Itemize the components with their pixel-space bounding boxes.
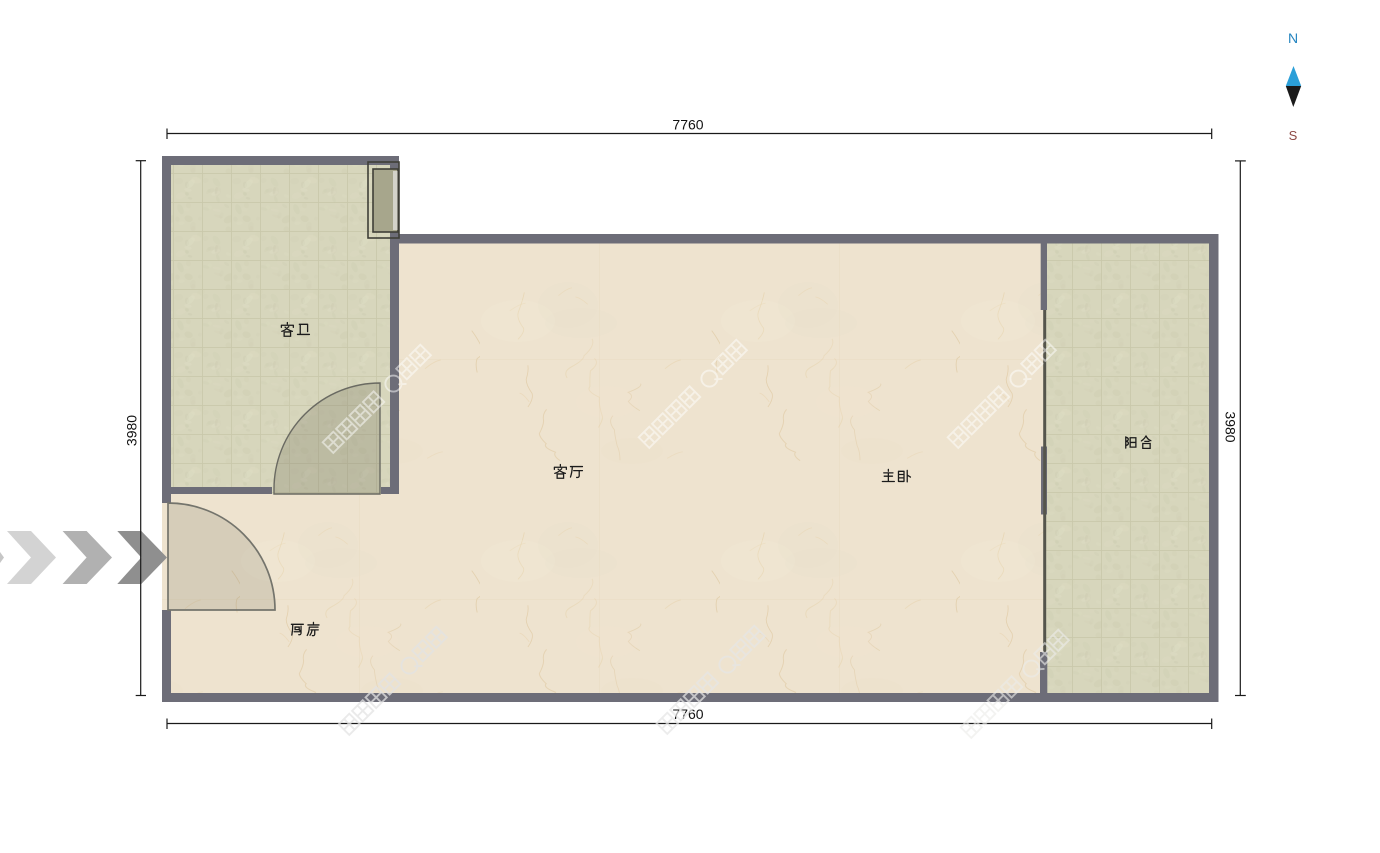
svg-text:7760: 7760	[672, 117, 703, 133]
svg-text:3980: 3980	[124, 415, 140, 446]
svg-text:3980: 3980	[1223, 411, 1239, 442]
svg-text:N: N	[1288, 30, 1298, 46]
svg-text:S: S	[1289, 128, 1298, 143]
